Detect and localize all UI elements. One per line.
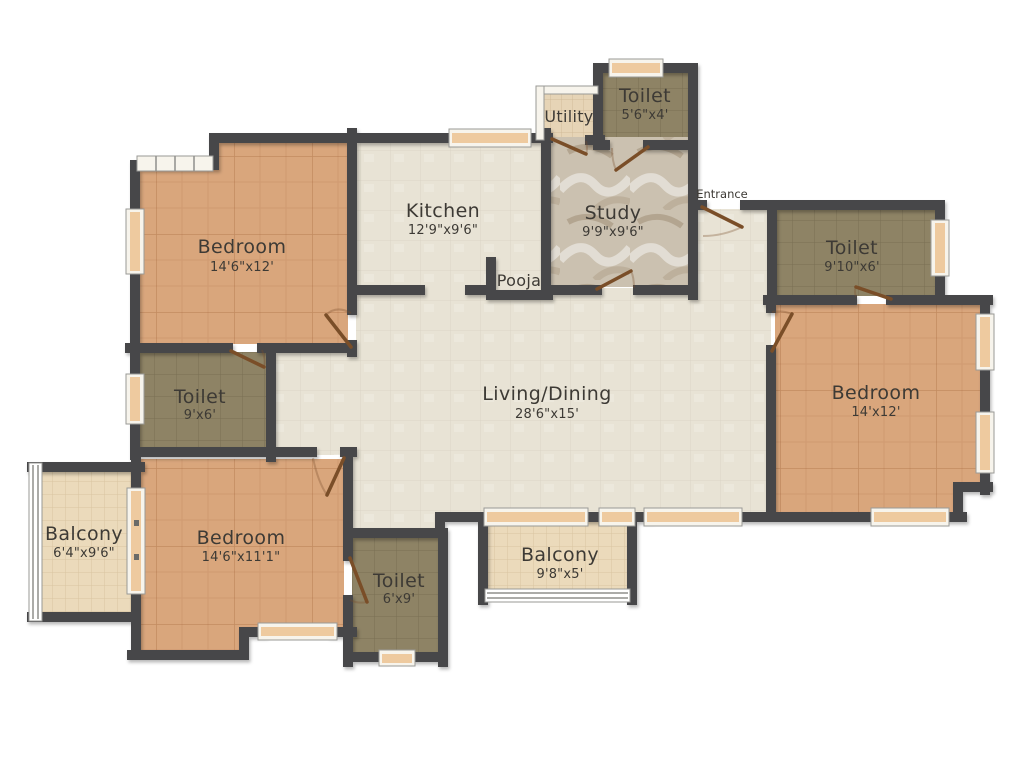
label-toilet-bottom-dims: 6'x9'	[383, 592, 415, 607]
window-balcony-bottom-french-2	[599, 508, 635, 526]
label-toilet-bottom-name: Toilet	[372, 570, 425, 592]
corridor-left-floor	[275, 352, 356, 455]
label-toilet-top-name: Toilet	[618, 85, 671, 107]
balcony-bottom-railing	[485, 589, 630, 602]
label-toilet-right-dims: 9'10"x6'	[824, 260, 880, 275]
label-balcony-bottom-name: Balcony	[521, 544, 599, 566]
label-utility-name: Utility	[544, 107, 593, 126]
label-toilet-right-name: Toilet	[825, 237, 878, 259]
label-pooja-name: Pooja	[497, 271, 541, 290]
window-bedroom-right-side-2	[976, 412, 994, 473]
room-toilet-top-floor	[600, 72, 689, 142]
floor-plan-canvas: Toilet 5'6"x4' Utility Kitchen 12'9"x9'6…	[0, 0, 1024, 768]
window-bedroom-top-left-step	[137, 156, 213, 171]
label-kitchen-name: Kitchen	[406, 200, 480, 222]
label-study-dims: 9'9"x9'6"	[582, 225, 644, 240]
label-bedroom-right-name: Bedroom	[832, 382, 921, 404]
window-living-bottom	[644, 508, 742, 526]
label-bedroom-bottom-name: Bedroom	[197, 527, 286, 549]
floor-plan: Toilet 5'6"x4' Utility Kitchen 12'9"x9'6…	[0, 0, 1024, 768]
utility-frame-top	[536, 86, 598, 94]
window-bedroom-top-left-side	[126, 209, 144, 274]
window-toilet-top	[609, 59, 663, 77]
label-study-name: Study	[585, 202, 642, 224]
window-balcony-left-partition	[127, 488, 145, 594]
label-bedroom-top-left-dims: 14'6"x12'	[210, 260, 274, 275]
label-living-name: Living/Dining	[482, 383, 611, 405]
window-bedroom-right-side-1	[976, 314, 994, 370]
label-toilet-left-name: Toilet	[173, 386, 226, 408]
label-bedroom-top-left-name: Bedroom	[198, 236, 287, 258]
label-balcony-left-dims: 6'4"x9'6"	[53, 546, 115, 561]
corridor-lower-floor	[352, 455, 440, 533]
utility-frame-left	[536, 86, 544, 140]
label-entrance: Entrance	[696, 187, 748, 201]
label-toilet-left-dims: 9'x6'	[184, 408, 216, 423]
balcony-left-railing	[29, 463, 42, 621]
label-kitchen-dims: 12'9"x9'6"	[408, 223, 478, 238]
window-toilet-bottom	[379, 650, 415, 666]
label-balcony-left-name: Balcony	[45, 523, 123, 545]
label-balcony-bottom-dims: 9'8"x5'	[536, 567, 583, 582]
label-toilet-top-dims: 5'6"x4'	[621, 108, 668, 123]
window-bedroom-right-bottom	[871, 508, 949, 526]
label-living-dims: 28'6"x15'	[515, 407, 579, 422]
window-bedroom-bottom	[258, 623, 337, 640]
window-balcony-bottom-french-1	[484, 508, 588, 526]
label-bedroom-right-dims: 14'x12'	[851, 405, 900, 420]
label-bedroom-bottom-dims: 14'6"x11'1"	[202, 550, 281, 565]
window-kitchen-top	[449, 129, 531, 147]
window-toilet-right-side	[931, 220, 949, 276]
window-toilet-left-side	[126, 374, 144, 424]
